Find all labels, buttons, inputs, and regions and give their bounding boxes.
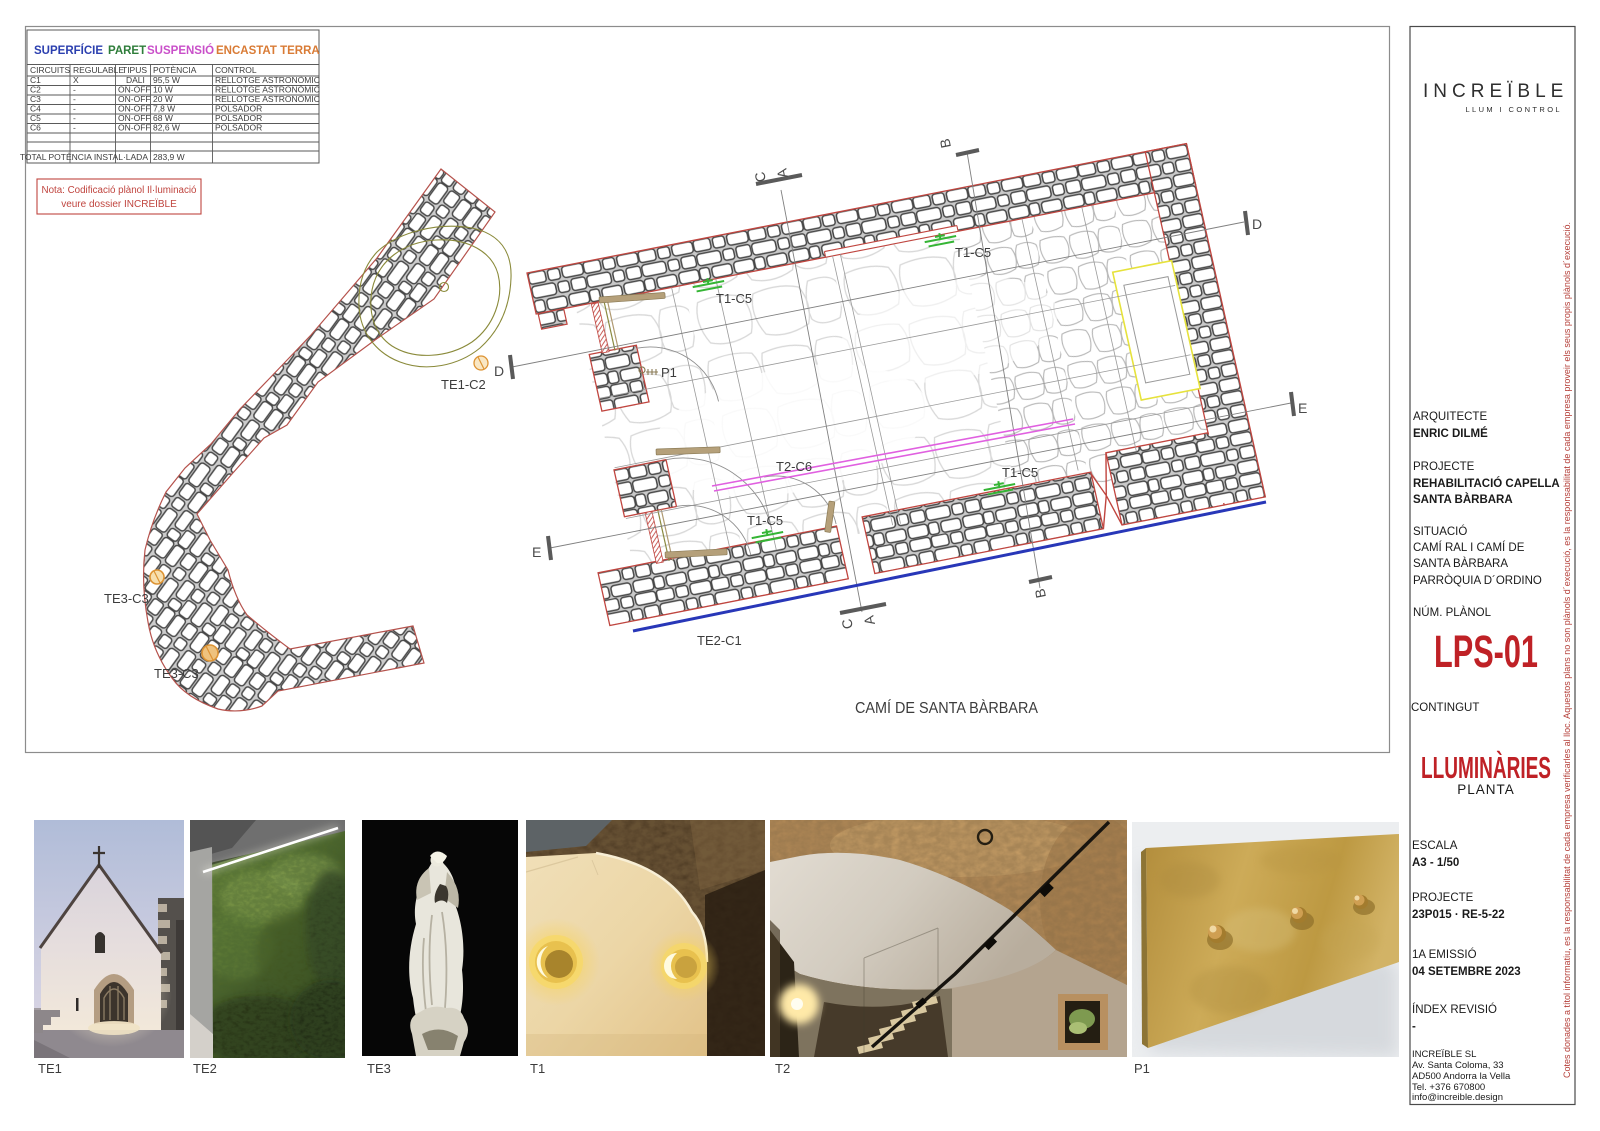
svg-text:ON-OFF: ON-OFF <box>118 113 151 123</box>
svg-text:CAMÍ DE SANTA BÀRBARA: CAMÍ DE SANTA BÀRBARA <box>855 700 1039 717</box>
svg-text:82,6 W: 82,6 W <box>153 123 180 133</box>
svg-text:23P015 · RE-5-22: 23P015 · RE-5-22 <box>1412 909 1505 921</box>
svg-text:P1: P1 <box>661 365 677 380</box>
svg-text:TE2-C1: TE2-C1 <box>697 633 742 648</box>
svg-text:RELLOTGE ASTRONÒMIC: RELLOTGE ASTRONÒMIC <box>215 85 320 95</box>
svg-text:TE1-C2: TE1-C2 <box>441 377 486 392</box>
svg-text:SANTA BÀRBARA: SANTA BÀRBARA <box>1413 557 1508 570</box>
svg-text:PROJECTE: PROJECTE <box>1412 892 1474 904</box>
svg-text:PLANTA: PLANTA <box>1457 782 1515 797</box>
svg-text:T2-C6: T2-C6 <box>776 459 812 474</box>
svg-text:C4: C4 <box>30 104 41 114</box>
svg-text:T1-C5: T1-C5 <box>1002 465 1038 480</box>
svg-text:LLUM I CONTROL: LLUM I CONTROL <box>1465 105 1562 114</box>
svg-text:RELLOTGE ASTRONÒMIC: RELLOTGE ASTRONÒMIC <box>215 94 320 104</box>
svg-text:REGULABLE: REGULABLE <box>73 65 124 75</box>
svg-text:SITUACIÓ: SITUACIÓ <box>1413 525 1467 538</box>
svg-text:C5: C5 <box>30 113 41 123</box>
svg-text:04 SETEMBRE 2023: 04 SETEMBRE 2023 <box>1412 966 1521 978</box>
svg-text:P1: P1 <box>1134 1061 1150 1076</box>
svg-text:10 W: 10 W <box>153 85 173 95</box>
svg-text:ON-OFF: ON-OFF <box>118 94 151 104</box>
svg-text:283,9 W: 283,9 W <box>153 152 185 162</box>
svg-text:C3: C3 <box>30 94 41 104</box>
svg-text:1A EMISSIÓ: 1A EMISSIÓ <box>1412 948 1477 961</box>
svg-text:POLSADOR: POLSADOR <box>215 123 262 133</box>
svg-text:ON-OFF: ON-OFF <box>118 104 151 114</box>
svg-text:C1: C1 <box>30 75 41 85</box>
svg-text:INCREÏBLE: INCREÏBLE <box>1423 81 1568 102</box>
svg-text:NÚM. PLÀNOL: NÚM. PLÀNOL <box>1413 606 1492 619</box>
svg-text:D: D <box>1252 216 1262 232</box>
svg-text:TE3-C3: TE3-C3 <box>104 591 149 606</box>
svg-text:X: X <box>73 75 79 85</box>
svg-text:T1: T1 <box>530 1061 545 1076</box>
svg-text:C2: C2 <box>30 85 41 95</box>
svg-text:TE2: TE2 <box>193 1061 217 1076</box>
svg-text:E: E <box>532 544 541 560</box>
svg-text:7,8 W: 7,8 W <box>153 104 175 114</box>
svg-text:DALI: DALI <box>126 75 145 85</box>
svg-text:PROJECTE: PROJECTE <box>1413 461 1475 473</box>
svg-text:-: - <box>73 123 76 133</box>
svg-text:TE3: TE3 <box>367 1061 391 1076</box>
svg-text:SUPERFÍCIE: SUPERFÍCIE <box>34 44 103 57</box>
svg-text:Cotes donades a títol informat: Cotes donades a títol informatiu, es la … <box>1562 222 1572 1078</box>
svg-text:REHABILITACIÓ CAPELLA: REHABILITACIÓ CAPELLA <box>1413 477 1560 490</box>
svg-text:T1-C5: T1-C5 <box>955 245 991 260</box>
svg-text:68 W: 68 W <box>153 113 173 123</box>
svg-text:ON-OFF: ON-OFF <box>118 123 151 133</box>
svg-text:-: - <box>73 85 76 95</box>
svg-text:LLUMINÀRIES: LLUMINÀRIES <box>1421 750 1551 785</box>
svg-text:ÍNDEX REVISIÓ: ÍNDEX REVISIÓ <box>1412 1003 1497 1016</box>
svg-text:T1-C5: T1-C5 <box>716 291 752 306</box>
svg-text:Av. Santa Coloma, 33: Av. Santa Coloma, 33 <box>1412 1060 1504 1071</box>
svg-text:LPS-01: LPS-01 <box>1434 626 1538 677</box>
svg-text:SANTA BÀRBARA: SANTA BÀRBARA <box>1413 493 1513 506</box>
svg-text:AD500 Andorra la Vella: AD500 Andorra la Vella <box>1412 1071 1511 1082</box>
svg-text:CONTINGUT: CONTINGUT <box>1411 702 1479 714</box>
svg-text:POLSADOR: POLSADOR <box>215 104 262 114</box>
svg-text:D: D <box>494 363 504 379</box>
svg-text:TE1: TE1 <box>38 1061 62 1076</box>
svg-text:CONTROL: CONTROL <box>215 65 257 75</box>
svg-text:ENCASTAT TERRA: ENCASTAT TERRA <box>216 45 320 57</box>
svg-text:RELLOTGE ASTRONÒMIC: RELLOTGE ASTRONÒMIC <box>215 75 320 85</box>
svg-text:-: - <box>1412 1021 1416 1033</box>
svg-text:SUSPENSIÓ: SUSPENSIÓ <box>147 44 214 57</box>
svg-text:POLSADOR: POLSADOR <box>215 113 262 123</box>
svg-text:TOTAL POTÈNCIA INSTAL·LADA: TOTAL POTÈNCIA INSTAL·LADA <box>20 152 148 162</box>
svg-text:ESCALA: ESCALA <box>1412 840 1458 852</box>
svg-text:-: - <box>73 104 76 114</box>
svg-text:-: - <box>73 94 76 104</box>
svg-text:ENRIC DILMÉ: ENRIC DILMÉ <box>1413 427 1488 440</box>
svg-text:CAMÍ RAL I CAMÍ DE: CAMÍ RAL I CAMÍ DE <box>1413 541 1525 554</box>
svg-text:95,5 W: 95,5 W <box>153 75 180 85</box>
svg-text:TE3-C3: TE3-C3 <box>154 666 199 681</box>
svg-text:-: - <box>73 113 76 123</box>
svg-text:info@increible.design: info@increible.design <box>1412 1092 1503 1103</box>
svg-text:POTÈNCIA: POTÈNCIA <box>153 65 197 75</box>
svg-text:ARQUITECTE: ARQUITECTE <box>1413 411 1487 423</box>
svg-text:T2: T2 <box>775 1061 790 1076</box>
svg-text:TIPUS: TIPUS <box>122 65 147 75</box>
svg-text:INCREÏBLE SL: INCREÏBLE SL <box>1412 1049 1476 1060</box>
svg-text:CIRCUITS: CIRCUITS <box>30 65 70 75</box>
svg-text:E: E <box>1298 400 1307 416</box>
svg-text:PARET: PARET <box>108 45 146 57</box>
svg-text:T1-C5: T1-C5 <box>747 513 783 528</box>
svg-text:PARRÒQUIA D´ORDINO: PARRÒQUIA D´ORDINO <box>1413 574 1542 587</box>
svg-text:Nota: Codificació plànol Il·lu: Nota: Codificació plànol Il·luminació <box>42 185 197 196</box>
svg-text:ON-OFF: ON-OFF <box>118 85 151 95</box>
svg-text:C6: C6 <box>30 123 41 133</box>
svg-text:veure dossier INCREÏBLE: veure dossier INCREÏBLE <box>61 198 177 210</box>
svg-text:20 W: 20 W <box>153 94 173 104</box>
svg-text:A3 - 1/50: A3 - 1/50 <box>1412 857 1459 869</box>
